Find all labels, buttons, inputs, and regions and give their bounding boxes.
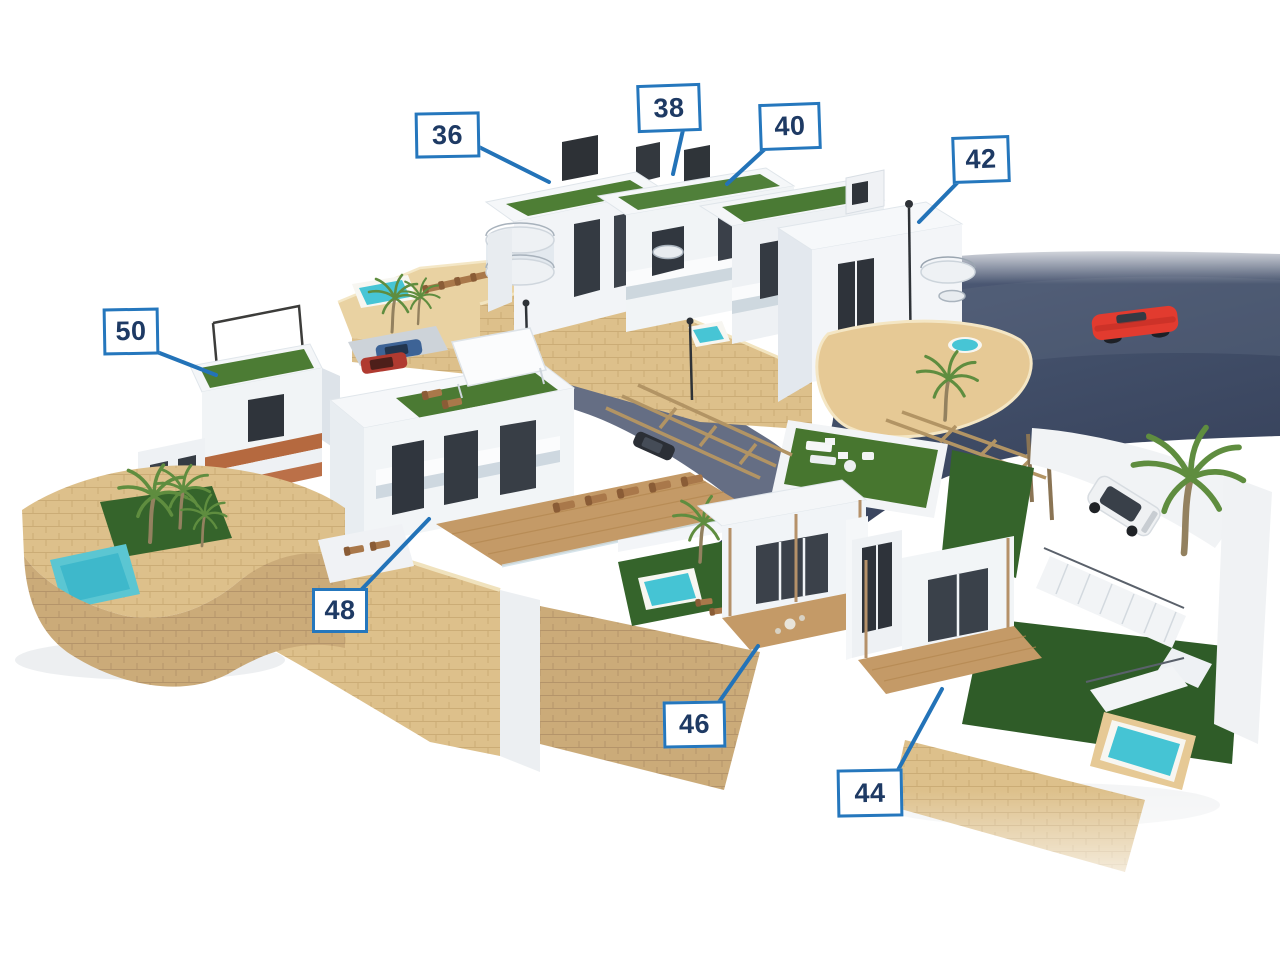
- window: [574, 219, 600, 297]
- leader-line-38: [673, 130, 683, 174]
- window: [500, 420, 536, 495]
- leader-line-36: [479, 147, 549, 182]
- window: [248, 394, 284, 442]
- unit-label-38: 38: [636, 83, 702, 133]
- window: [392, 440, 424, 515]
- window: [444, 430, 478, 505]
- sandstone-wall: [540, 606, 760, 790]
- side-face: [778, 228, 812, 402]
- curved-balcony: [921, 261, 975, 283]
- unit-label-44: 44: [837, 768, 904, 817]
- white-wall: [1214, 474, 1272, 744]
- unit-label-36: 36: [415, 111, 481, 158]
- spiral-stair: [939, 291, 965, 302]
- unit-label-40: 40: [758, 102, 822, 151]
- unit-label-46: 46: [663, 700, 727, 748]
- unit-label-50: 50: [103, 308, 160, 356]
- unit-label-48: 48: [312, 588, 368, 633]
- scene-3d-render: [0, 0, 1280, 960]
- spiral-stair: [653, 246, 683, 259]
- unit-label-42: 42: [951, 135, 1011, 184]
- render-canvas: 36 38 40 42 50 48 46 44: [0, 0, 1280, 960]
- stair: [488, 228, 512, 312]
- white-pillar: [500, 590, 540, 772]
